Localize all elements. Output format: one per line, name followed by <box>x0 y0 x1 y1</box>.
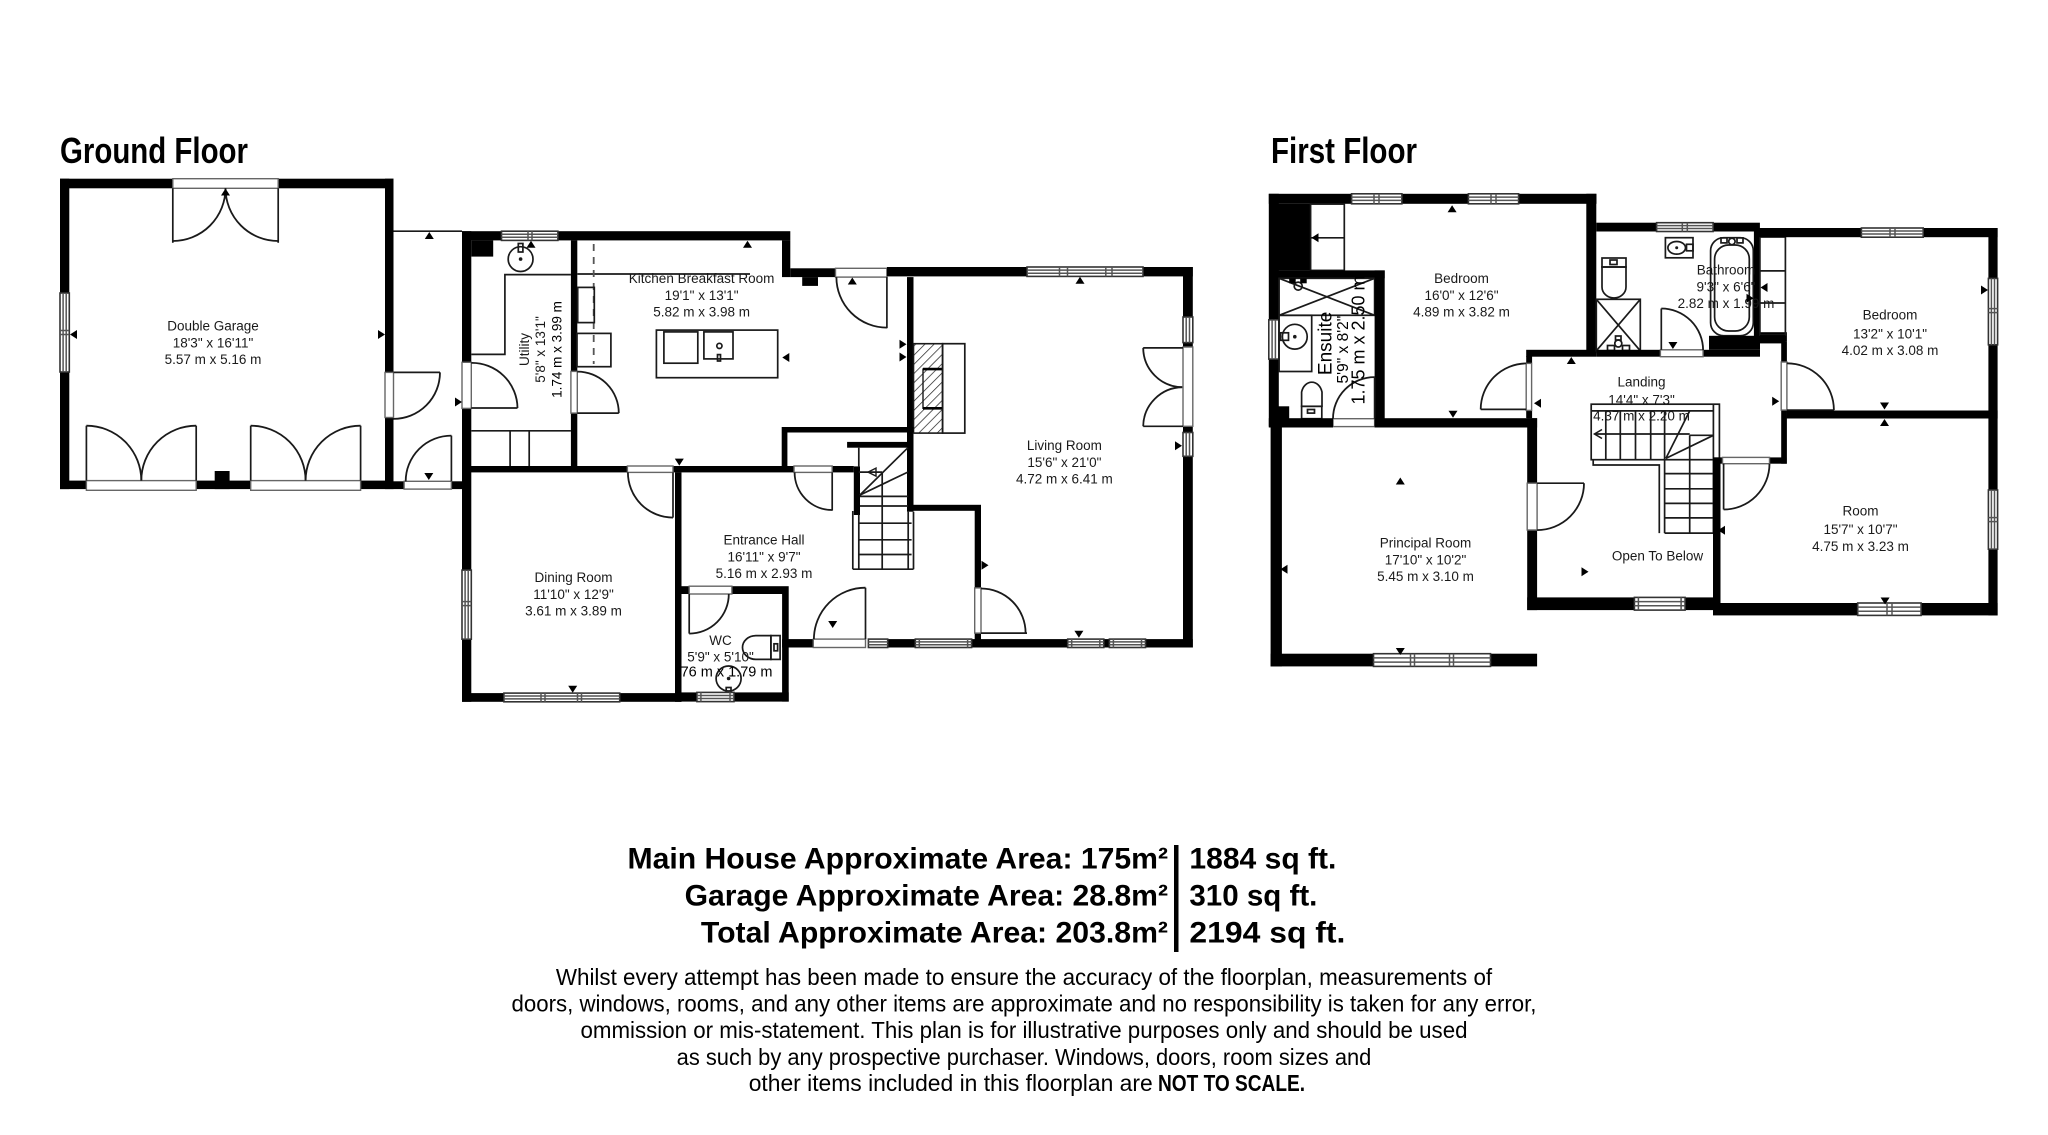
svg-text:NOT TO SCALE.: NOT TO SCALE. <box>1158 1070 1305 1096</box>
svg-text:14'4" x 7'3": 14'4" x 7'3" <box>1608 393 1675 408</box>
svg-text:Bathroom: Bathroom <box>1697 263 1756 278</box>
svg-text:Total Approximate Area: 203.8m: Total Approximate Area: 203.8m² <box>701 916 1168 949</box>
svg-text:19'1" x 13'1": 19'1" x 13'1" <box>665 288 739 303</box>
svg-text:5.57 m x 5.16 m: 5.57 m x 5.16 m <box>165 352 262 367</box>
svg-text:18'3" x 16'11": 18'3" x 16'11" <box>173 335 254 350</box>
svg-text:Bedroom: Bedroom <box>1434 271 1489 286</box>
svg-text:Ensuite: Ensuite <box>1316 312 1337 375</box>
svg-text:2194 sq ft.: 2194 sq ft. <box>1189 916 1345 949</box>
svg-text:as such by any prospective pur: as such by any prospective purchaser. Wi… <box>677 1044 1372 1070</box>
svg-text:16'11" x 9'7": 16'11" x 9'7" <box>727 550 800 565</box>
svg-text:Bedroom: Bedroom <box>1863 308 1918 323</box>
svg-text:Kitchen Breakfast Room: Kitchen Breakfast Room <box>629 271 775 286</box>
svg-text:First Floor: First Floor <box>1271 130 1417 171</box>
svg-text:Double Garage: Double Garage <box>167 318 259 333</box>
svg-text:Principal Room: Principal Room <box>1380 536 1472 551</box>
svg-text:other items included in this f: other items included in this floorplan a… <box>749 1070 1153 1096</box>
svg-text:doors, windows, rooms, and any: doors, windows, rooms, and any other ite… <box>512 991 1537 1017</box>
svg-text:16'0" x 12'6": 16'0" x 12'6" <box>1424 288 1498 303</box>
svg-text:76 m x 1.79 m: 76 m x 1.79 m <box>681 664 773 680</box>
svg-text:Open To Below: Open To Below <box>1612 549 1704 564</box>
svg-text:Entrance Hall: Entrance Hall <box>723 533 804 548</box>
svg-text:Ground Floor: Ground Floor <box>60 130 248 171</box>
svg-text:Main House Approximate Area: 1: Main House Approximate Area: 175m² <box>628 843 1169 876</box>
svg-text:4.37 m x 2.20 m: 4.37 m x 2.20 m <box>1593 409 1690 424</box>
svg-text:Room: Room <box>1842 504 1878 519</box>
svg-text:5.16 m x 2.93 m: 5.16 m x 2.93 m <box>716 566 813 581</box>
svg-text:Utility: Utility <box>517 333 532 366</box>
svg-text:3.61 m x 3.89 m: 3.61 m x 3.89 m <box>525 604 622 619</box>
svg-text:4.72 m x 6.41 m: 4.72 m x 6.41 m <box>1016 472 1113 487</box>
svg-text:4.02 m x 3.08 m: 4.02 m x 3.08 m <box>1842 343 1939 358</box>
svg-text:15'7" x 10'7": 15'7" x 10'7" <box>1823 522 1897 537</box>
svg-text:5.82 m x 3.98 m: 5.82 m x 3.98 m <box>653 305 750 320</box>
svg-text:13'2" x 10'1": 13'2" x 10'1" <box>1853 327 1927 342</box>
svg-text:11'10" x 12'9": 11'10" x 12'9" <box>533 587 614 602</box>
svg-text:1.74 m x 3.99 m: 1.74 m x 3.99 m <box>549 301 564 398</box>
svg-text:17'10" x 10'2": 17'10" x 10'2" <box>1385 553 1467 568</box>
svg-text:Dining Room: Dining Room <box>534 570 612 585</box>
svg-text:15'6" x 21'0": 15'6" x 21'0" <box>1027 455 1101 470</box>
svg-text:Living Room: Living Room <box>1027 438 1102 453</box>
svg-text:5'8" x 13'1": 5'8" x 13'1" <box>533 316 548 383</box>
svg-text:Landing: Landing <box>1617 375 1665 390</box>
svg-text:Whilst every attempt has been: Whilst every attempt has been made to en… <box>556 964 1493 990</box>
svg-text:ommission or mis-statement. Th: ommission or mis-statement. This plan is… <box>581 1017 1468 1043</box>
svg-text:1884 sq ft.: 1884 sq ft. <box>1189 843 1336 876</box>
svg-text:4.89 m x 3.82 m: 4.89 m x 3.82 m <box>1413 305 1510 320</box>
svg-text:5.45 m x 3.10 m: 5.45 m x 3.10 m <box>1377 569 1474 584</box>
svg-text:4.75 m x 3.23 m: 4.75 m x 3.23 m <box>1812 539 1909 554</box>
svg-text:Garage Approximate Area: 28.8m: Garage Approximate Area: 28.8m² <box>685 880 1168 913</box>
svg-text:WC: WC <box>709 633 732 648</box>
svg-text:9'3" x 6'6": 9'3" x 6'6" <box>1696 280 1755 295</box>
svg-text:1.75 m x 2.50 m: 1.75 m x 2.50 m <box>1349 275 1369 404</box>
svg-text:5'9" x 5'10": 5'9" x 5'10" <box>687 650 754 665</box>
svg-text:310 sq ft.: 310 sq ft. <box>1189 880 1317 913</box>
